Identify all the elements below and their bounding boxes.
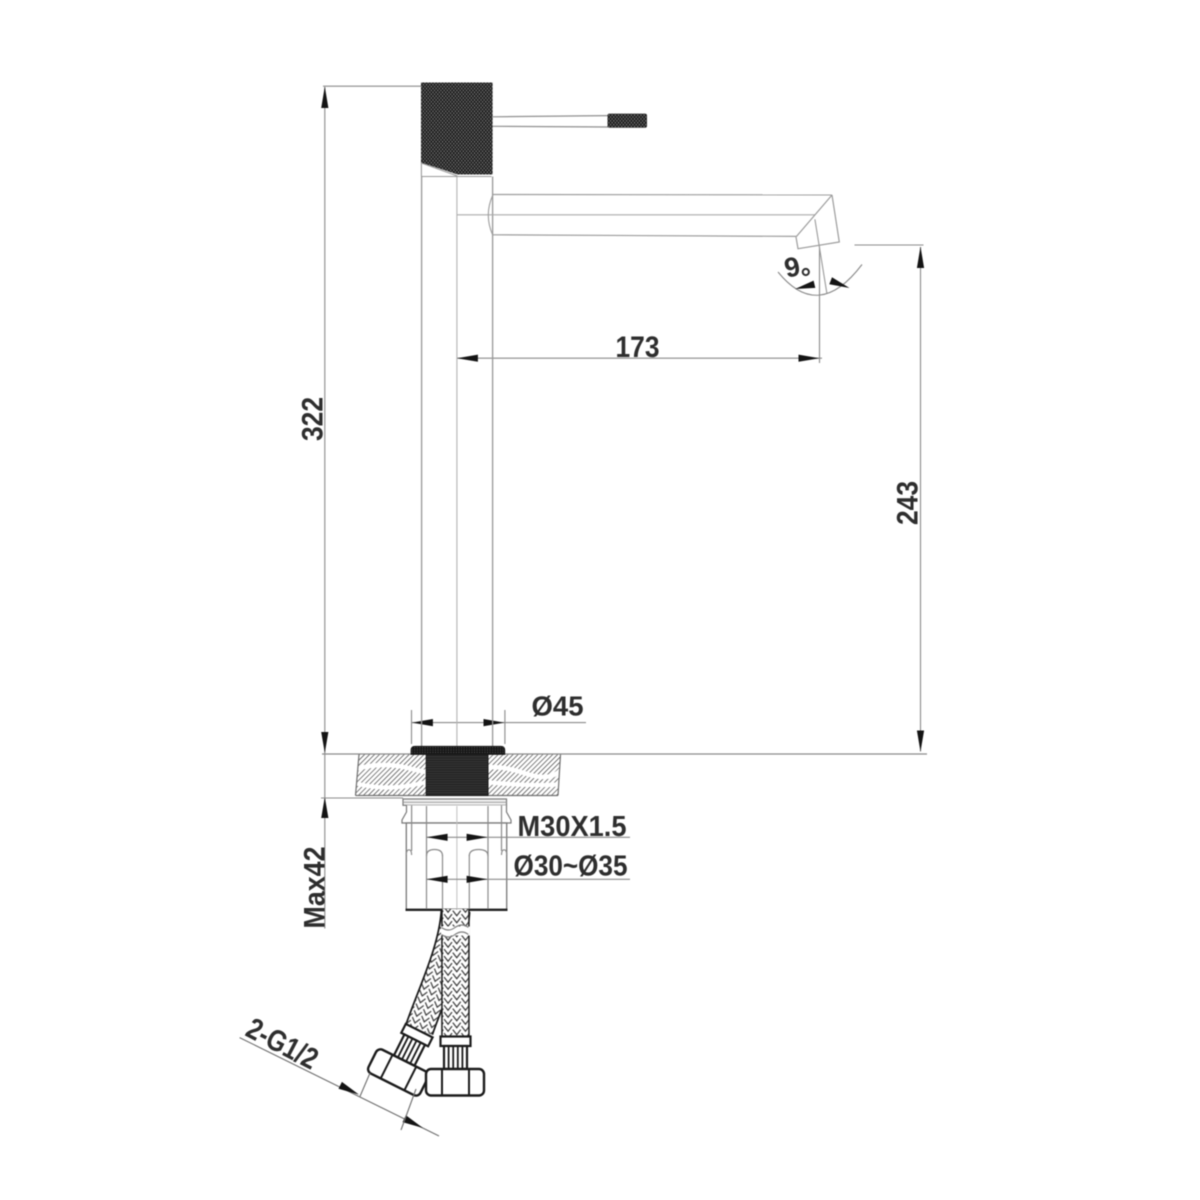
svg-text:173: 173 [616,331,660,364]
svg-text:Max42: Max42 [299,847,332,929]
svg-text:Ø45: Ø45 [532,691,584,722]
svg-text:Ø30~Ø35: Ø30~Ø35 [514,851,628,883]
svg-text:M30X1.5: M30X1.5 [518,811,627,843]
svg-text:243: 243 [892,481,925,525]
svg-text:322: 322 [297,397,330,441]
